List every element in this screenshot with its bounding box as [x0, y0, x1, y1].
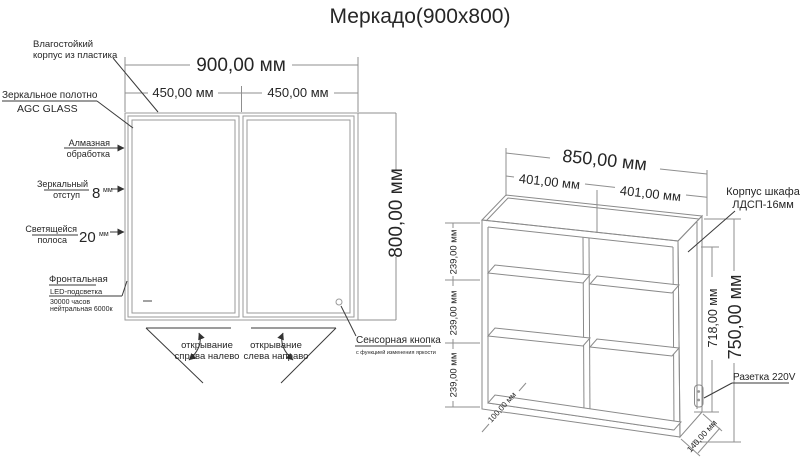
label-diamond-line1: Алмазная — [69, 138, 110, 148]
svg-text:900,00 мм: 900,00 мм — [196, 55, 286, 76]
dim-shelf-spacing-2: 239,00 мм — [449, 291, 460, 336]
label-sensor-button-sub: с функцией изменения яркости — [356, 349, 436, 356]
svg-text:450,00 мм: 450,00 мм — [152, 85, 213, 100]
label-open-left-line2: справа налево — [175, 351, 240, 362]
label-sensor-button: Сенсорная кнопка — [356, 335, 441, 346]
label-open-right-line1: открывание — [250, 340, 302, 351]
offset-value: 8 — [92, 185, 100, 202]
label-led-line3: 30000 часов — [50, 299, 90, 306]
label-strip-line1: Светящейся — [25, 224, 77, 234]
technical-drawing-page: Меркадо(900x800) 900,00 мм — [0, 0, 800, 457]
label-diamond-line2: обработка — [67, 149, 110, 159]
svg-text:450,00 мм: 450,00 мм — [267, 85, 328, 100]
label-glass-line2: AGC GLASS — [17, 103, 78, 115]
svg-text:718,00 мм: 718,00 мм — [706, 289, 720, 348]
label-case-line1: Влагостойкий — [33, 39, 93, 50]
drawing-canvas: Меркадо(900x800) 900,00 мм — [0, 0, 800, 457]
label-led-line2: LED-подсветка — [50, 287, 103, 296]
label-case-line2: корпус из пластика — [33, 50, 118, 61]
label-open-right-line2: слева направо — [244, 351, 309, 362]
label-glass-line1: Зеркальное полотно — [2, 90, 98, 101]
label-cabinet-body-line2: ЛДСП-16мм — [732, 199, 794, 211]
page-title: Меркадо(900x800) — [330, 5, 511, 28]
svg-text:750,00 мм: 750,00 мм — [725, 275, 745, 360]
label-strip-line2: полоса — [37, 235, 67, 245]
label-led-line1: Фронтальная — [49, 274, 108, 285]
offset-unit: мм — [103, 187, 113, 194]
dim-shelf-spacing-1: 239,00 мм — [449, 230, 460, 275]
label-open-left-line1: открывание — [181, 340, 233, 351]
label-led-line4: нейтральная 6000к — [50, 305, 113, 313]
label-cabinet-body-line1: Корпус шкафа — [726, 186, 800, 198]
label-socket: Разетка 220V — [733, 372, 796, 383]
label-offset-line2: отступ — [53, 190, 80, 200]
label-offset-line1: Зеркальный — [37, 179, 88, 189]
svg-text:800,00 мм: 800,00 мм — [386, 168, 407, 258]
dim-shelf-spacing-3: 239,00 мм — [449, 353, 460, 398]
strip-value: 20 — [79, 229, 96, 246]
strip-unit: мм — [99, 231, 109, 238]
